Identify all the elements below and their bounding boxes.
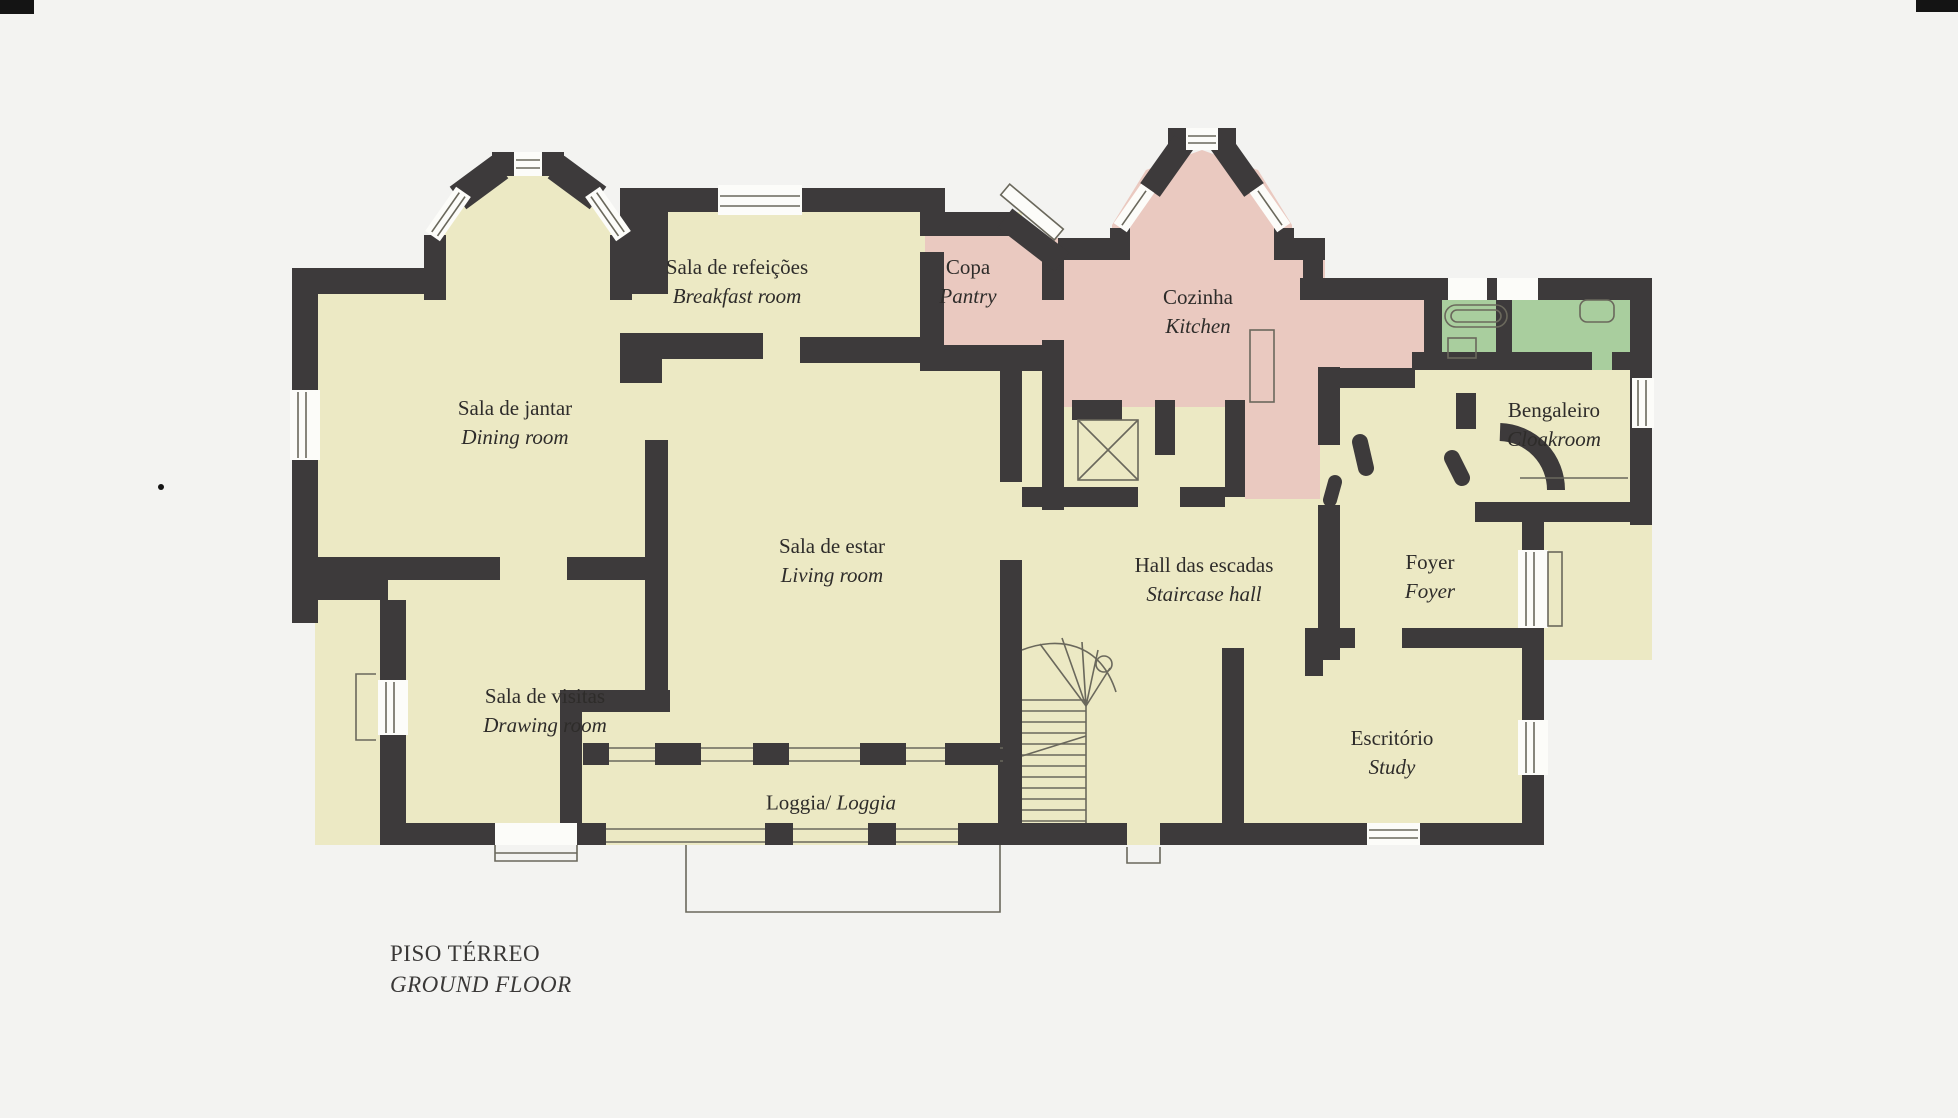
room-name-pt: Cozinha [1163, 283, 1233, 312]
room-name-en: Foyer [1405, 577, 1455, 606]
floor-plan-drawing [0, 0, 1958, 1118]
room-label-kitchen: Cozinha Kitchen [1163, 283, 1233, 341]
floor-plan-page: Sala de refeições Breakfast room Copa Pa… [0, 0, 1958, 1118]
room-name-pt: Foyer [1405, 548, 1455, 577]
room-name-pt: Loggia/ [766, 791, 831, 815]
room-label-living-room: Sala de estar Living room [779, 532, 885, 590]
room-name-pt: Copa [939, 253, 996, 282]
room-name-pt: Bengaleiro [1507, 396, 1601, 425]
room-label-breakfast-room: Sala de refeições Breakfast room [666, 253, 808, 311]
plan-title-en: GROUND FLOOR [390, 969, 572, 1000]
room-name-pt: Escritório [1351, 724, 1434, 753]
room-name-en: Staircase hall [1135, 580, 1274, 609]
room-name-en: Pantry [939, 282, 996, 311]
plan-title-pt: PISO TÉRREO [390, 938, 572, 969]
room-label-cloakroom: Bengaleiro Cloakroom [1507, 396, 1601, 454]
room-name-en: Breakfast room [666, 282, 808, 311]
room-label-loggia: Loggia/ Loggia [766, 789, 896, 818]
room-name-en: Loggia [837, 791, 897, 815]
room-label-drawing-room: Sala de visitas Drawing room [483, 682, 607, 740]
room-label-dining-room: Sala de jantar Dining room [458, 394, 572, 452]
room-name-pt: Hall das escadas [1135, 551, 1274, 580]
room-name-pt: Sala de refeições [666, 253, 808, 282]
room-name-en: Drawing room [483, 711, 607, 740]
room-name-en: Cloakroom [1507, 425, 1601, 454]
room-label-foyer: Foyer Foyer [1405, 548, 1455, 606]
room-name-pt: Sala de visitas [483, 682, 607, 711]
room-name-pt: Sala de estar [779, 532, 885, 561]
room-name-en: Dining room [458, 423, 572, 452]
room-label-pantry: Copa Pantry [939, 253, 996, 311]
room-name-en: Living room [779, 561, 885, 590]
plan-title: PISO TÉRREO GROUND FLOOR [390, 938, 572, 1000]
room-name-en: Study [1351, 753, 1434, 782]
room-label-study: Escritório Study [1351, 724, 1434, 782]
room-name-en: Kitchen [1163, 312, 1233, 341]
room-label-staircase-hall: Hall das escadas Staircase hall [1135, 551, 1274, 609]
room-name-pt: Sala de jantar [458, 394, 572, 423]
